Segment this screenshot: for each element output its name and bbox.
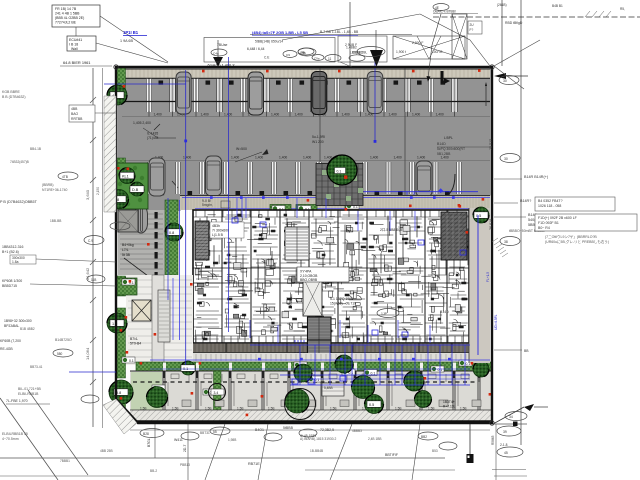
svg-text:B14D: B14D	[440, 310, 449, 314]
svg-text:2口-5 5B8,008: 2口-5 5B8,008	[380, 228, 402, 232]
svg-text:55: 55	[213, 430, 217, 434]
svg-text:B1B 4BB2: B1B 4BB2	[20, 327, 35, 331]
svg-text:B7GL: B7GL	[147, 438, 151, 447]
svg-text:L7/L: L7/L	[122, 248, 129, 252]
svg-text:1,400: 1,400	[370, 156, 378, 160]
svg-text:7BBB1: 7BBB1	[60, 459, 70, 463]
svg-text:100/7B: 100/7B	[432, 50, 443, 54]
svg-text:L/5PL: L/5PL	[444, 136, 453, 140]
svg-text:7BUae: 7BUae	[217, 43, 227, 47]
svg-text:C9s: C9s	[300, 51, 306, 55]
svg-text:R5,: R5,	[620, 7, 625, 11]
svg-text:5mg/m,: 5mg/m,	[202, 203, 213, 207]
svg-text:1JP: 1JP	[381, 312, 388, 316]
svg-text:B14D: B14D	[437, 142, 446, 146]
svg-text:5tBBB: 5tBBB	[283, 426, 294, 430]
svg-text:C9: C9	[286, 53, 290, 57]
svg-text:L(1.5 B: L(1.5 B	[212, 233, 224, 237]
svg-text:1BB-BB: 1BB-BB	[50, 219, 61, 223]
svg-text:64.8 BIER 1961: 64.8 BIER 1961	[63, 60, 90, 65]
svg-text:Wall: Wall	[71, 47, 78, 51]
svg-text:2,150: 2,150	[96, 187, 100, 195]
svg-text:B53: B53	[432, 449, 438, 453]
svg-text:1,400: 1,400	[441, 156, 449, 160]
svg-text:1,400: 1,400	[389, 112, 397, 116]
svg-text:36,616: 36,616	[489, 219, 493, 230]
svg-text:(71)445: (71)445	[147, 136, 159, 140]
svg-text:0.1: 0.1	[337, 169, 342, 173]
svg-text:D.B: D.B	[132, 188, 139, 192]
svg-text:FL+1.5: FL+1.5	[486, 272, 490, 282]
svg-text:0.5: 0.5	[476, 214, 481, 218]
svg-text:5B1,2BB: 5B1,2BB	[437, 152, 451, 156]
svg-text:15(7,60) - 09,719: 15(7,60) - 09,719	[330, 302, 356, 306]
svg-text:(BBRB): (BBRB)	[42, 183, 54, 187]
svg-text:RE-4GB: RE-4GB	[0, 347, 13, 351]
svg-text:C4a: C4a	[213, 52, 219, 56]
svg-text:BB4-1B: BB4-1B	[30, 147, 41, 151]
svg-text:1026 118 - 058: 1026 118 - 058	[538, 204, 561, 208]
svg-text:BB5D715: BB5D715	[2, 284, 17, 288]
svg-text:2 9UB F: 2 9UB F	[345, 43, 357, 47]
svg-text:OBAIC-x BTBB!: OBAIC-x BTBB!	[433, 10, 456, 14]
svg-text:B4B B1: B4B B1	[552, 4, 563, 8]
svg-text:BIL-01,721+5B: BIL-01,721+5B	[18, 387, 41, 391]
svg-text:UD=4.5FL: UD=4.5FL	[494, 314, 498, 330]
svg-text:CB3 ( S9L: CB3 ( S9L	[352, 51, 367, 55]
svg-text:BBO,OB9B: BBO,OB9B	[300, 278, 318, 282]
svg-text:ECU#41: ECU#41	[69, 38, 82, 42]
svg-text:34: 34	[509, 415, 513, 419]
svg-text:1,400: 1,400	[394, 156, 402, 160]
svg-text:1B98+32 300x300: 1B98+32 300x300	[4, 319, 32, 323]
svg-text:B+1 (B2.6): B+1 (B2.6)	[2, 250, 19, 254]
svg-text:1,400: 1,400	[183, 156, 191, 160]
svg-text:11: 11	[328, 57, 332, 61]
svg-text:1,400: 1,400	[154, 112, 162, 116]
svg-text:1,400: 1,400	[342, 112, 350, 116]
svg-text:1,400: 1,400	[279, 156, 287, 160]
svg-text:(UR60uに5B,グレ-リと PREBBしも右う): (UR60uに5B,グレ-リと PREBBしも右う)	[545, 239, 609, 244]
svg-text:(BB5 4L O2BB 2E): (BB5 4L O2BB 2E)	[55, 16, 84, 20]
svg-text:C9a: C9a	[314, 57, 320, 61]
svg-text:241 4 4B 1 5BB: 241 4 4B 1 5BB	[55, 12, 80, 16]
svg-text:F?: F?	[470, 28, 474, 32]
svg-text:74B32(457)B: 74B32(457)B	[10, 160, 29, 164]
svg-text:B4+0kg: B4+0kg	[122, 243, 134, 247]
svg-text:BB-2: BB-2	[150, 469, 157, 473]
svg-text:7L-FBE 1,970: 7L-FBE 1,970	[6, 399, 28, 403]
svg-text:I B 18: I B 18	[69, 43, 78, 47]
svg-text:1,400: 1,400	[201, 112, 209, 116]
svg-text:1B3T4+: 1B3T4+	[443, 400, 455, 404]
svg-text:BAO: BAO	[71, 112, 79, 116]
svg-text:2,4B 1BB: 2,4B 1BB	[368, 437, 381, 441]
svg-text:7r 300x600: 7r 300x600	[212, 229, 229, 233]
svg-text:BBT31: BBT31	[200, 431, 210, 435]
svg-text:RB71E: RB71E	[248, 462, 260, 466]
svg-text:2D-7: 2D-7	[183, 445, 187, 452]
svg-text:30: 30	[503, 79, 507, 83]
svg-text:KGB BBRE: KGB BBRE	[2, 90, 21, 94]
svg-text:N71RE+36-1740: N71RE+36-1740	[42, 188, 67, 192]
svg-text:IL-1435: IL-1435	[147, 132, 158, 136]
svg-text:C.E: C.E	[264, 56, 269, 60]
svg-text:6,448 / 6,44: 6,448 / 6,44	[247, 47, 265, 51]
svg-text:2-1.8: 2-1.8	[500, 443, 508, 447]
svg-text:39: 39	[503, 430, 507, 434]
svg-text:KL1: KL1	[122, 175, 129, 179]
svg-text:B4 0352 FB4T?: B4 0352 FB4T?	[538, 199, 563, 203]
svg-text:2U: 2U	[470, 23, 475, 27]
svg-text:1,98B: 1,98B	[228, 438, 236, 442]
svg-text:B14R B14R(+): B14R B14R(+)	[524, 175, 548, 179]
svg-text:1,400: 1,400	[255, 156, 263, 160]
svg-text:4BB 25B: 4BB 25B	[100, 449, 113, 453]
svg-text:0.1: 0.1	[129, 359, 134, 363]
svg-text:2,900 F: 2,900 F	[412, 41, 424, 45]
svg-text:1BB4312-316: 1BB4312-316	[2, 245, 23, 249]
svg-text:0.8: 0.8	[169, 231, 174, 235]
svg-text:5tBB(14B) 650u/14: 5tBB(14B) 650u/14	[255, 40, 283, 44]
svg-text:3.4: 3.4	[214, 391, 219, 395]
svg-text:4BBB3: 4BBB3	[352, 429, 362, 433]
svg-text:B28: B28	[143, 432, 149, 436]
svg-text:1,405 2,400: 1,405 2,400	[133, 121, 151, 125]
svg-text:4~70.5mm: 4~70.5mm	[2, 437, 19, 441]
svg-text:BBTIFIF: BBTIFIF	[385, 453, 398, 457]
svg-text:5T9-B4: 5T9-B4	[130, 342, 141, 346]
svg-text:XY'4PA: XY'4PA	[300, 270, 312, 274]
svg-text:F1D(+) 092F 2B x600 LF: F1D(+) 092F 2B x600 LF	[538, 216, 577, 220]
svg-text:11B: 11B	[91, 278, 96, 282]
svg-text:5u-1,9RI: 5u-1,9RI	[312, 135, 325, 139]
svg-text:1,400: 1,400	[436, 112, 444, 116]
svg-text:5-1 14PQ 1908: 5-1 14PQ 1908	[330, 297, 353, 301]
svg-text:14,064: 14,064	[85, 347, 90, 360]
svg-text:1B-BB4B: 1B-BB4B	[310, 449, 323, 453]
svg-text:(7二OttlウL9ン7ゲ」(BBRRLO?B: (7二OttlウL9ン7ゲ」(BBRRLO?B	[545, 234, 597, 239]
svg-text:RRTBB: RRTBB	[71, 117, 83, 121]
svg-text:25,515: 25,515	[489, 139, 493, 150]
svg-text:5t 3B: 5t 3B	[122, 253, 131, 257]
svg-text:FR 1B) 14 7B: FR 1B) 14 7B	[55, 7, 77, 11]
svg-text:R+7.11L: R+7.11L	[443, 405, 455, 409]
svg-text:B0~ R4: B0~ R4	[538, 226, 550, 230]
svg-text:30: 30	[504, 157, 508, 161]
svg-text:W411: W411	[174, 438, 183, 442]
svg-text:F1D 092F B1: F1D 092F B1	[538, 221, 559, 225]
svg-text:KF60B (7,200: KF60B (7,200	[0, 339, 21, 343]
svg-text:1,400: 1,400	[295, 112, 303, 116]
svg-text:1P1I B1: 1P1I B1	[123, 30, 139, 35]
svg-text:1,400: 1,400	[271, 112, 279, 116]
svg-text:B7/4-: B7/4-	[130, 337, 138, 341]
svg-text:C.9: C.9	[88, 239, 93, 243]
svg-text:1,900 t: 1,900 t	[396, 50, 406, 54]
svg-text:45: 45	[504, 451, 508, 455]
svg-text:B.7 GB 1-1BL - 1,4B - BB: B.7 GB 1-1BL - 1,4B - BB	[320, 30, 359, 34]
svg-text:5,4BB: 5,4BB	[324, 386, 333, 390]
svg-text:1,400: 1,400	[412, 112, 420, 116]
svg-text:4TB: 4TB	[62, 175, 68, 179]
svg-text:BB: BB	[524, 349, 529, 353]
svg-text:W=500: W=500	[236, 147, 247, 151]
svg-text:RBD tBfigD: RBD tBfigD	[505, 21, 523, 25]
svg-text:BB2: BB2	[421, 435, 427, 439]
svg-text:B14B725O: B14B725O	[55, 338, 72, 342]
svg-text:B14R?: B14R?	[520, 199, 531, 203]
svg-text:4B3h: 4B3h	[212, 224, 220, 228]
svg-text:1,400: 1,400	[231, 156, 239, 160]
svg-text:77274JL2 BE: 77274JL2 BE	[55, 21, 77, 25]
svg-text:BB73-41: BB73-41	[30, 365, 43, 369]
svg-text:38: 38	[504, 240, 508, 244]
svg-text:1,400: 1,400	[303, 156, 311, 160]
svg-text:3,640: 3,640	[85, 189, 90, 200]
svg-text:KP608 1/300: KP608 1/300	[2, 279, 22, 283]
svg-text:BPZABAL: BPZABAL	[4, 324, 19, 328]
svg-text:1 9A 6B: 1 9A 6B	[120, 39, 133, 43]
svg-text:1.8a: 1.8a	[12, 260, 19, 264]
svg-text:4+45,1933: 4+45,1933	[300, 434, 316, 438]
svg-text:B B (D7B4632): B B (D7B4632)	[2, 95, 26, 99]
svg-text:PBB13: PBB13	[180, 463, 190, 467]
svg-text:(261B): (261B)	[497, 3, 507, 7]
svg-text:580: 580	[57, 352, 63, 356]
svg-text:4BB: 4BB	[71, 107, 78, 111]
svg-text:0.5: 0.5	[369, 403, 374, 407]
svg-text:W1 200: W1 200	[312, 140, 324, 144]
svg-text:ELBILRBB1B: ELBILRBB1B	[18, 392, 39, 396]
svg-text:R5863: R5863	[491, 435, 495, 445]
svg-text:P B (D7B4632)OBB5T: P B (D7B4632)OBB5T	[0, 200, 38, 204]
svg-text:5cPQ 300x600(RT: 5cPQ 300x600(RT	[437, 147, 465, 151]
svg-text:1,400: 1,400	[417, 156, 425, 160]
